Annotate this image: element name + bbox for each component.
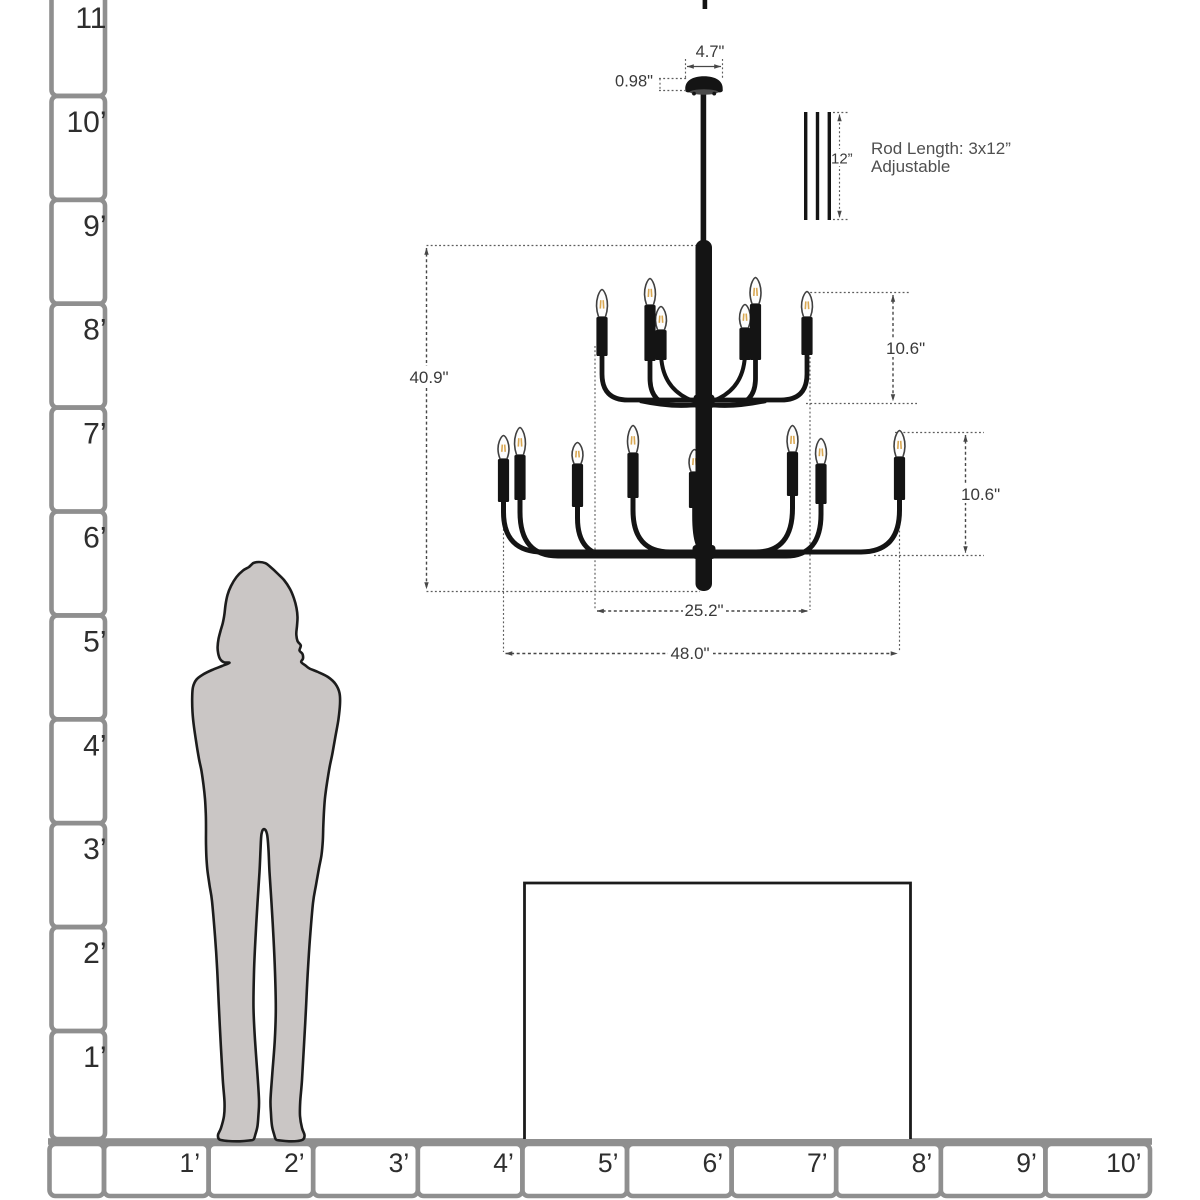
svg-text:48.0": 48.0" (670, 644, 709, 663)
svg-text:9’: 9’ (1016, 1148, 1037, 1178)
svg-text:10’: 10’ (1106, 1148, 1141, 1178)
svg-text:40.9": 40.9" (409, 368, 448, 387)
svg-text:3’: 3’ (83, 833, 106, 866)
svg-text:4’: 4’ (83, 729, 106, 762)
svg-text:8’: 8’ (83, 314, 106, 347)
svg-text:7’: 7’ (807, 1148, 828, 1178)
svg-text:2’: 2’ (284, 1148, 305, 1178)
svg-text:6’: 6’ (83, 522, 106, 555)
svg-text:10’: 10’ (66, 106, 106, 139)
svg-text:8’: 8’ (912, 1148, 933, 1178)
svg-text:10.6": 10.6" (886, 339, 925, 358)
svg-text:Rod Length: 3x12”: Rod Length: 3x12” (871, 139, 1011, 158)
svg-text:3’: 3’ (389, 1148, 410, 1178)
svg-text:6’: 6’ (702, 1148, 723, 1178)
svg-text:25.2": 25.2" (684, 601, 723, 620)
svg-text:2’: 2’ (83, 937, 106, 970)
svg-text:10.6": 10.6" (961, 485, 1000, 504)
svg-text:1’: 1’ (179, 1148, 200, 1178)
svg-text:4’: 4’ (493, 1148, 514, 1178)
svg-text:9’: 9’ (83, 210, 106, 243)
svg-text:12”: 12” (831, 151, 853, 168)
svg-text:5’: 5’ (598, 1148, 619, 1178)
svg-text:5’: 5’ (83, 625, 106, 658)
svg-text:0.98": 0.98" (615, 73, 653, 91)
svg-text:Adjustable: Adjustable (871, 157, 950, 176)
svg-text:4.7": 4.7" (696, 43, 725, 61)
svg-text:1’: 1’ (83, 1041, 106, 1074)
svg-text:7’: 7’ (83, 418, 106, 451)
svg-text:11: 11 (75, 2, 106, 35)
